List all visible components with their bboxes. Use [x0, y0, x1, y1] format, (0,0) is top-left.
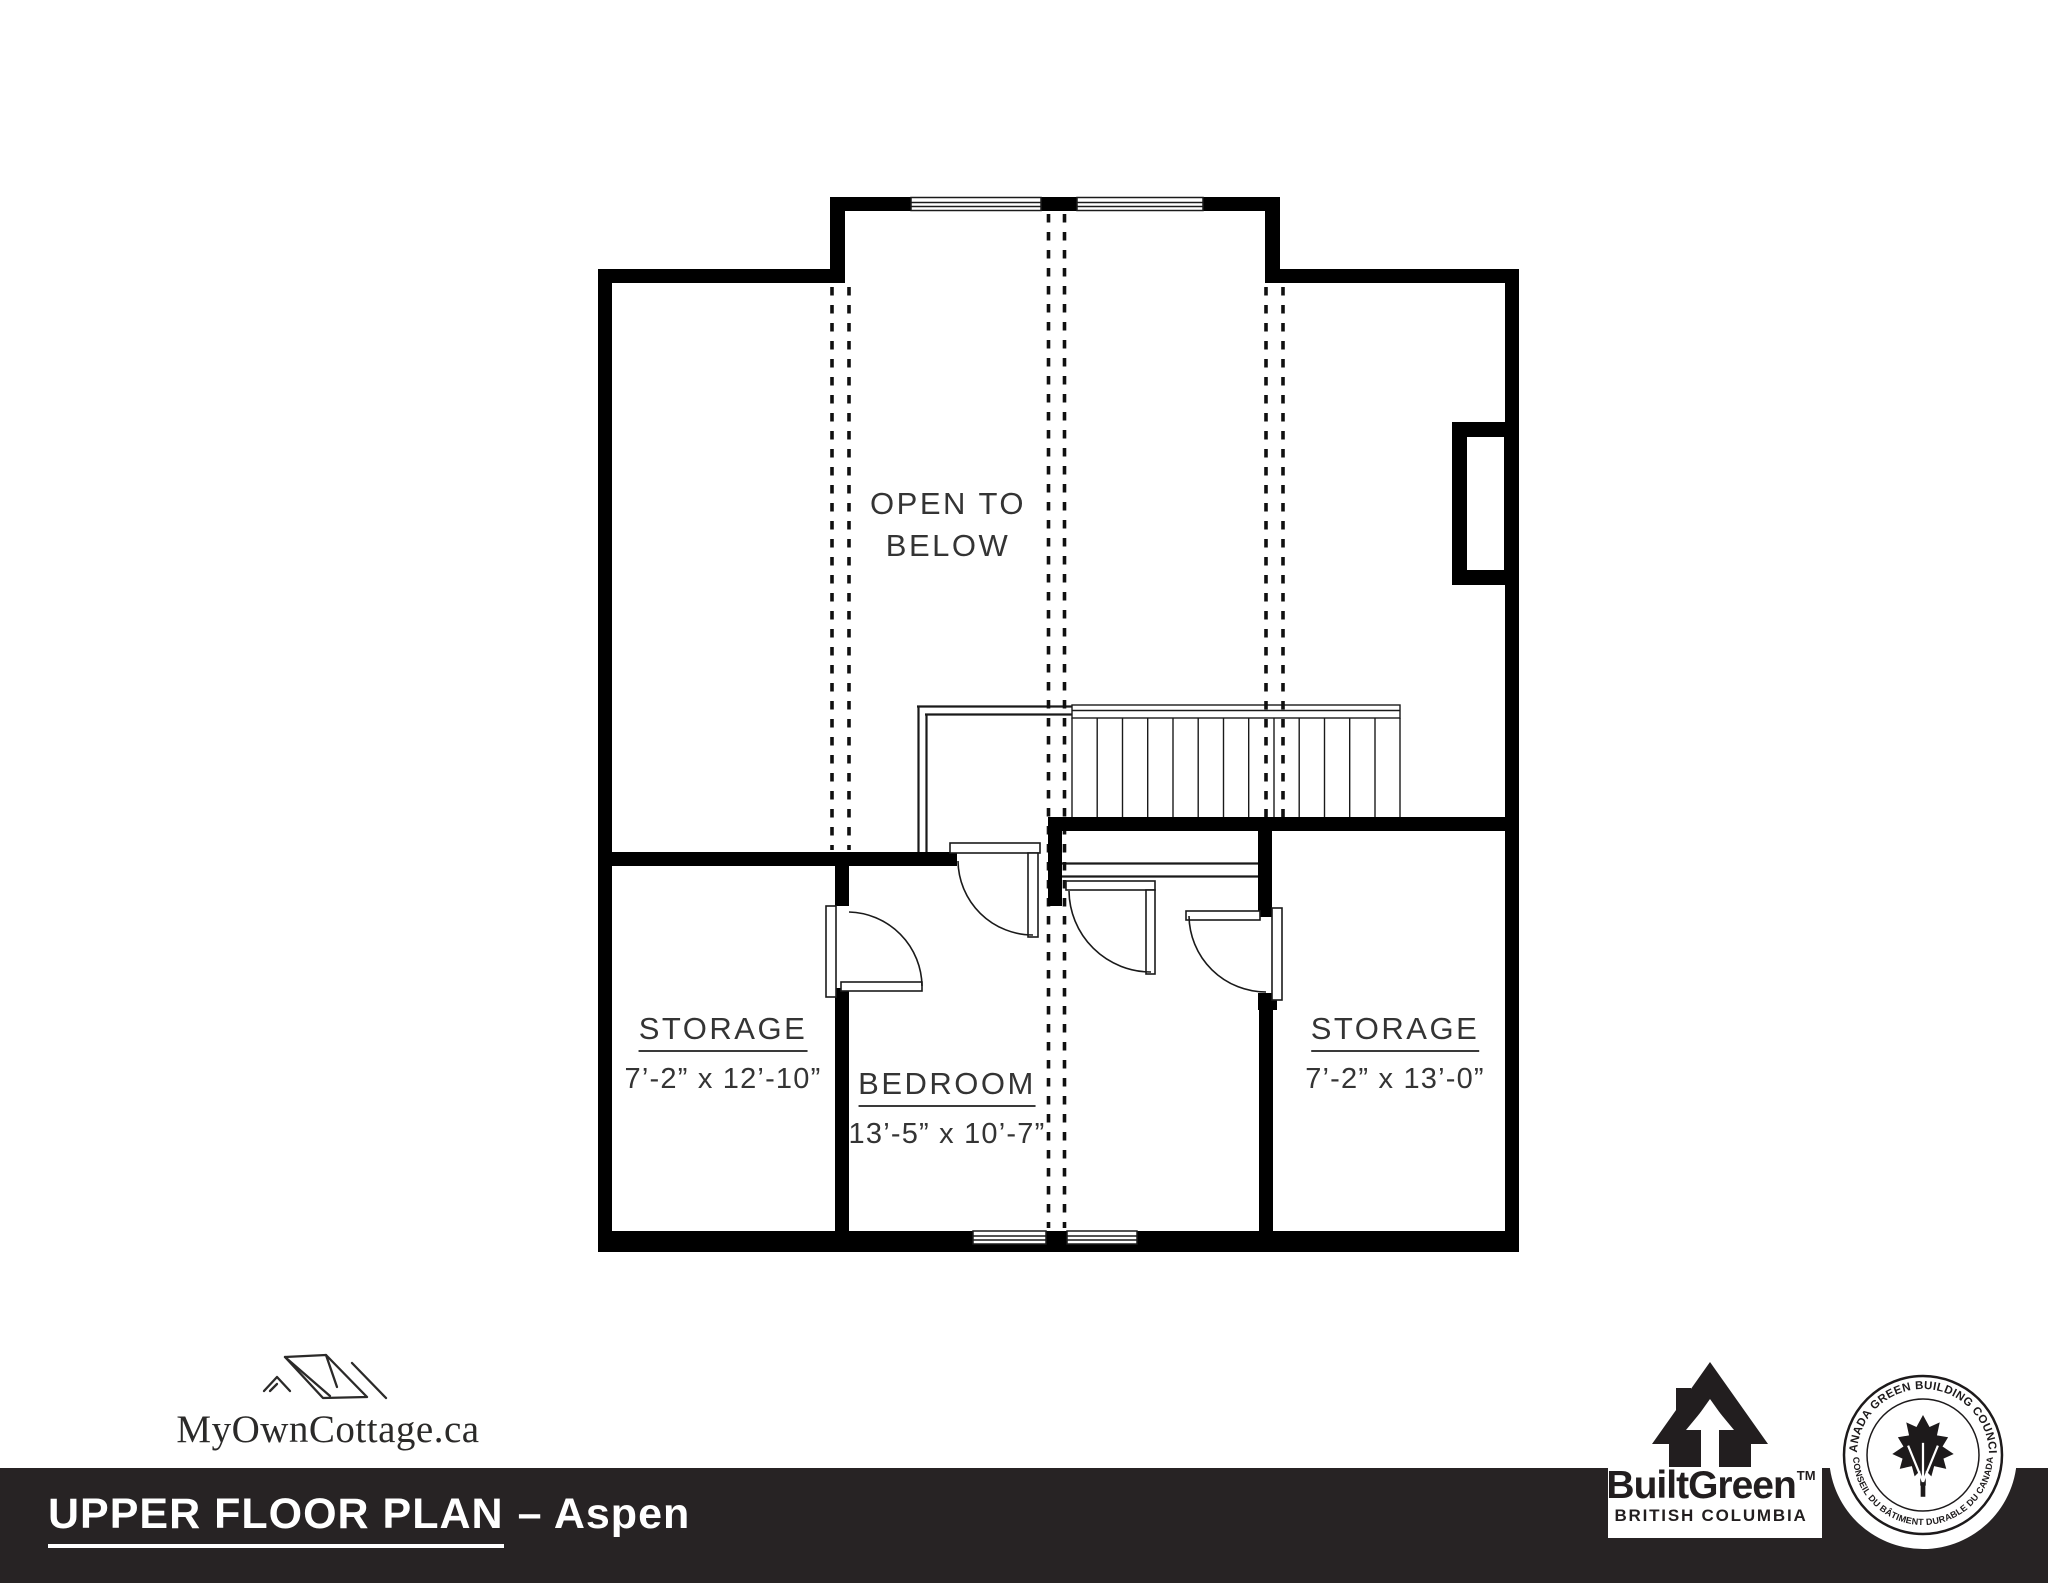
page-title-underlined: UPPER FLOOR PLAN — [48, 1490, 504, 1548]
label-bedroom: BEDROOM 13’-5” x 10’-7” — [849, 1066, 1046, 1151]
stairs-icon — [1072, 705, 1400, 817]
room-name: STORAGE — [625, 1011, 822, 1052]
wall-interior-b1 — [835, 852, 849, 906]
wall-corridor-left — [1048, 817, 1062, 906]
window-top-2 — [1077, 198, 1203, 211]
window-top-1 — [911, 198, 1041, 211]
wall-step-right — [1265, 197, 1280, 283]
fireplace-nook-inner — [1467, 437, 1504, 570]
trademark-symbol: TM — [1797, 1468, 1816, 1483]
room-dimensions: 7’-2” x 13’-0” — [1305, 1063, 1485, 1096]
builtgreen-region: BRITISH COLUMBIA — [1614, 1506, 1807, 1526]
cagbc-seal: CANADA GREEN BUILDING COUNCIL • CONSEIL … — [1823, 1348, 2023, 1562]
wall-right — [1505, 269, 1519, 1252]
wall-upper-left — [598, 269, 845, 283]
door-storage-left — [826, 906, 922, 997]
wall-under-stairs — [1048, 817, 1519, 831]
builtgreen-wordmark: BuiltGreenTM — [1606, 1464, 1815, 1508]
builtgreen-house-icon — [1640, 1352, 1780, 1470]
label-storage-right: STORAGE 7’-2” x 13’-0” — [1305, 1011, 1485, 1096]
cottage-roof-icon — [250, 1338, 410, 1413]
wall-interior-a — [612, 852, 957, 866]
wall-bedroom-storage — [1259, 993, 1273, 1231]
page-title: UPPER FLOOR PLAN– Aspen — [48, 1490, 690, 1548]
wall-interior-b2 — [835, 988, 849, 1231]
wall-bottom — [598, 1231, 1519, 1252]
wall-top-upper — [830, 197, 1280, 211]
room-dimensions: 7’-2” x 12’-10” — [625, 1063, 822, 1096]
page: OPEN TO BELOW STORAGE 7’-2” x 12’-10” BE… — [0, 0, 2048, 1583]
room-name: STORAGE — [1305, 1011, 1485, 1052]
page-title-suffix: – Aspen — [518, 1490, 691, 1538]
door-bedroom — [950, 843, 1040, 937]
label-open-to-below: OPEN TO BELOW — [870, 483, 1026, 566]
open-to-below-line2: BELOW — [870, 525, 1026, 567]
door-landing — [1066, 881, 1155, 974]
window-bottom-2 — [1067, 1231, 1137, 1244]
brand-name: MyOwnCottage.ca — [176, 1407, 479, 1452]
wall-upper-right — [1265, 269, 1519, 283]
door-storage-right — [1186, 908, 1282, 1000]
window-bottom-1 — [973, 1231, 1046, 1244]
open-to-below-line1: OPEN TO — [870, 483, 1026, 525]
room-name: BEDROOM — [849, 1066, 1046, 1107]
label-storage-left: STORAGE 7’-2” x 12’-10” — [625, 1011, 822, 1096]
room-dimensions: 13’-5” x 10’-7” — [849, 1118, 1046, 1151]
wall-left — [598, 269, 612, 1252]
wall-corridor-right — [1258, 831, 1272, 917]
